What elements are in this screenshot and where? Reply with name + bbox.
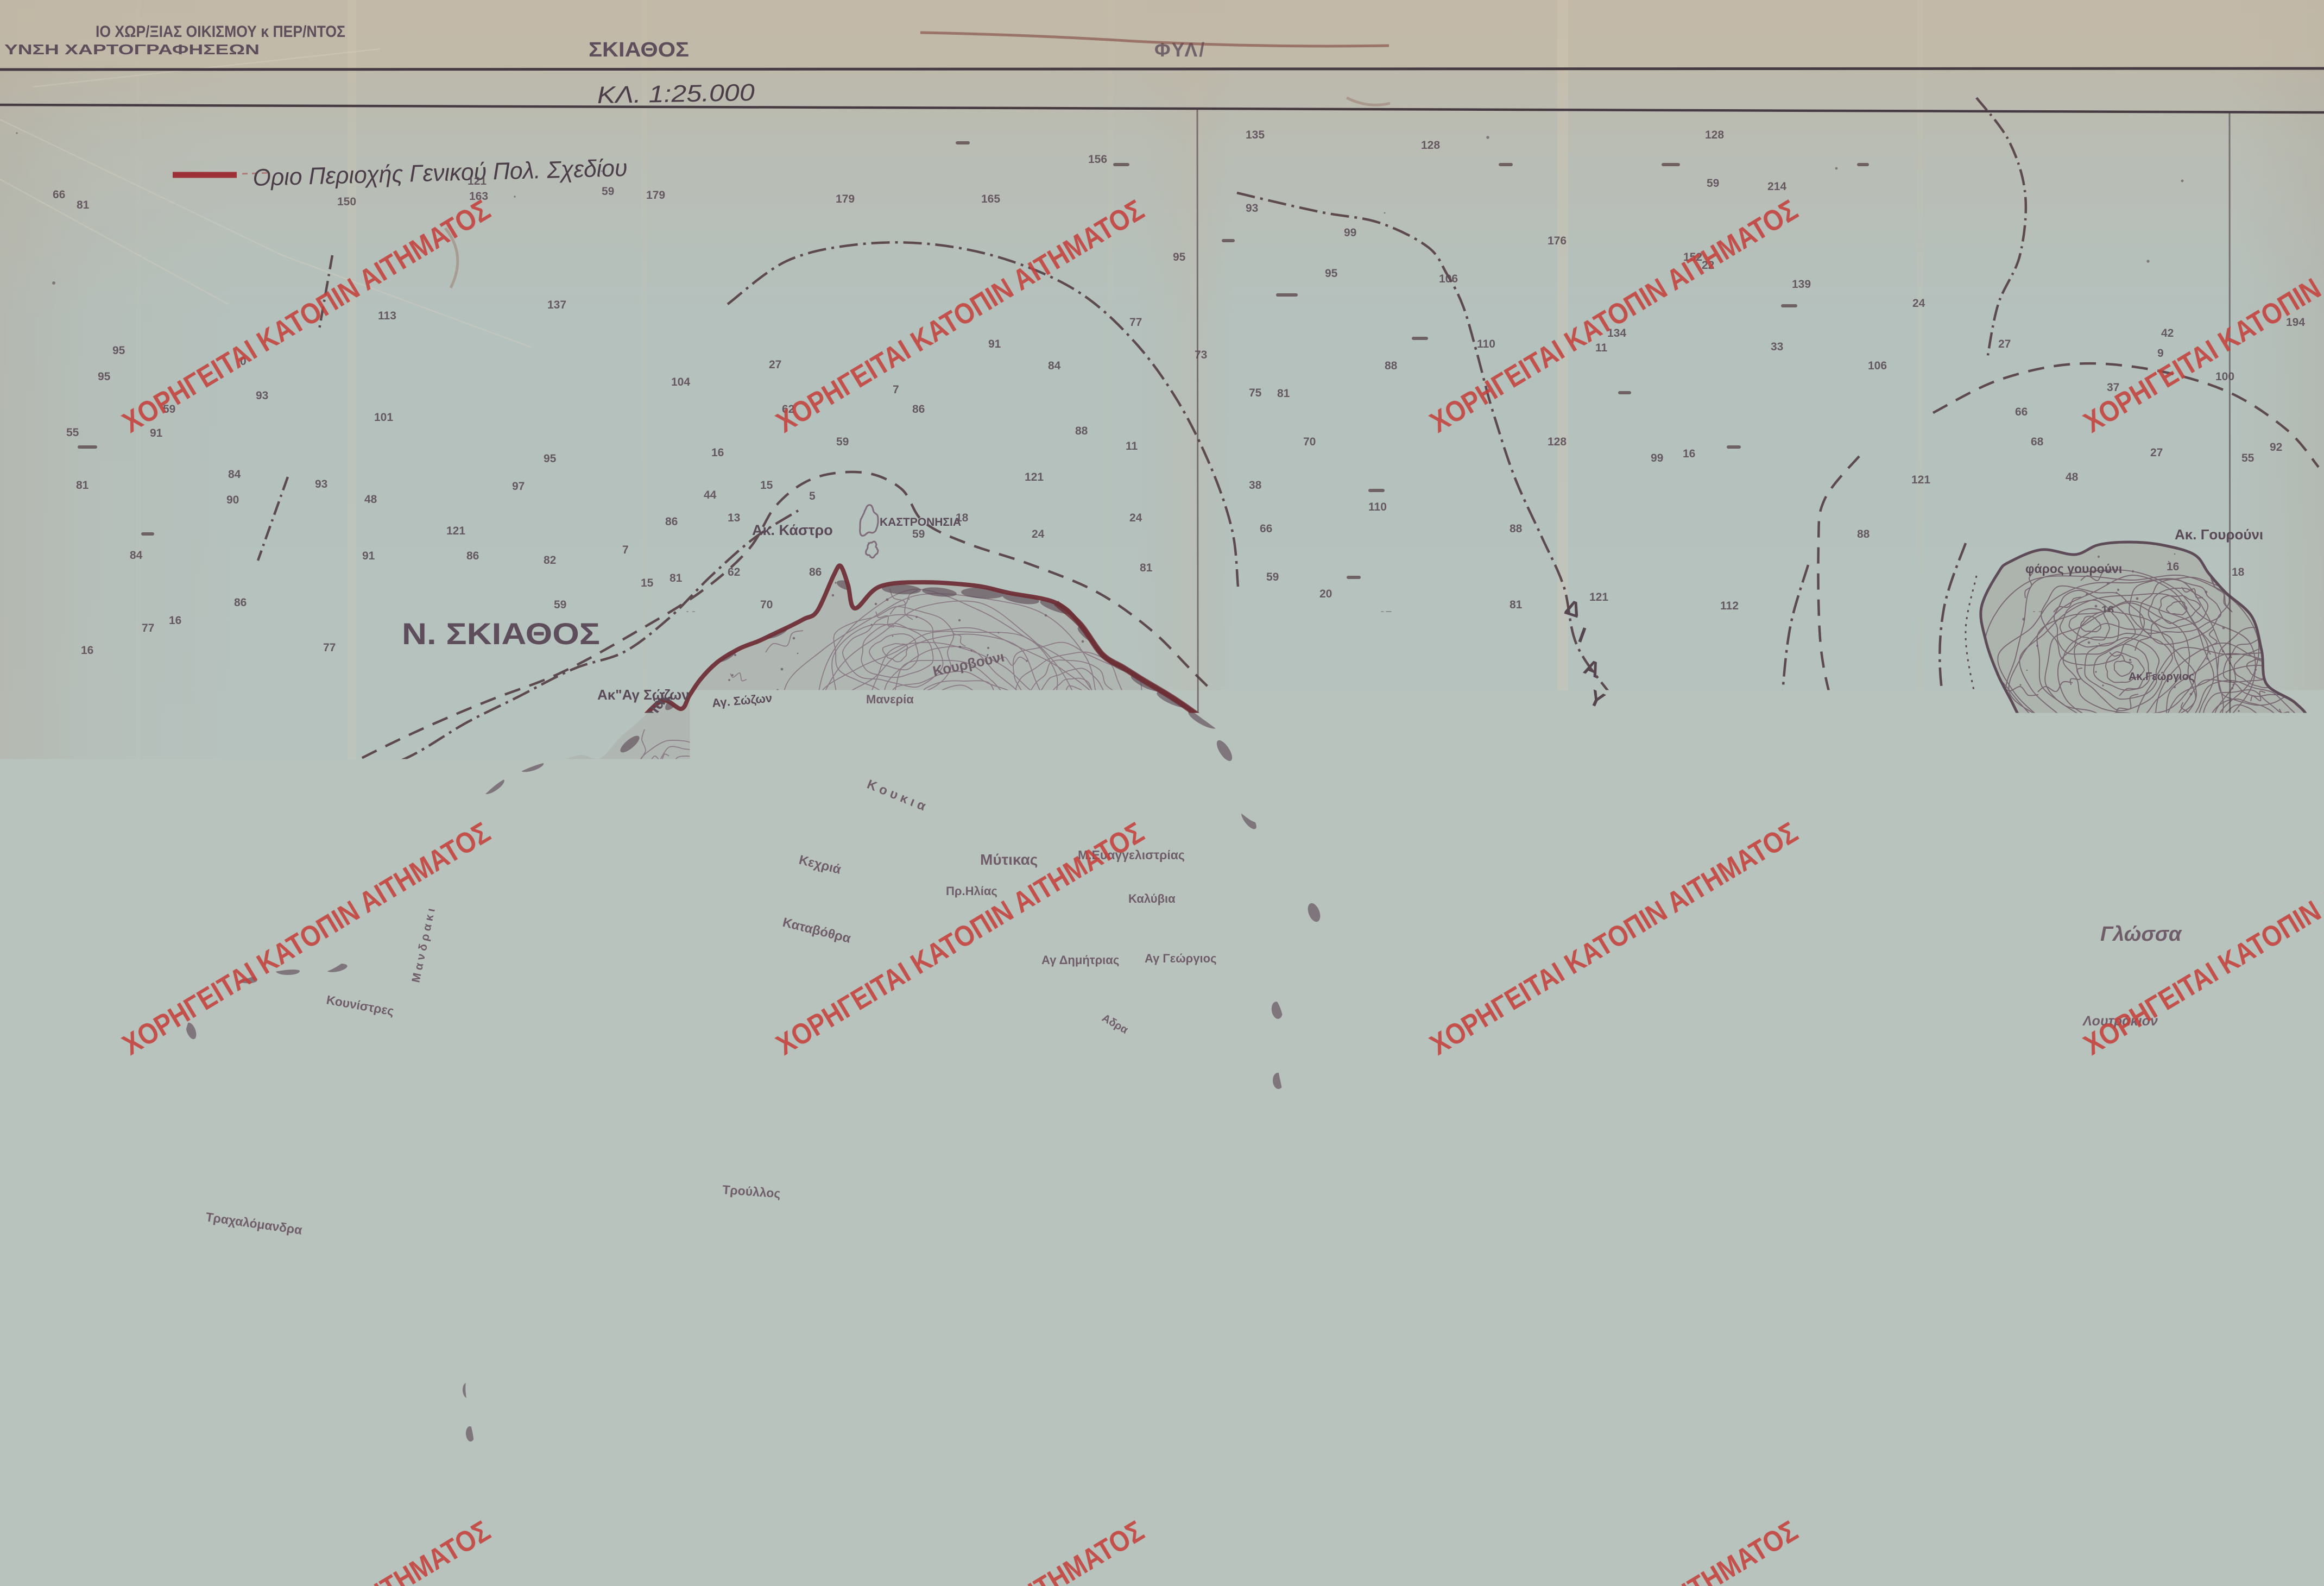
svg-text:60: 60 <box>1097 1413 1109 1426</box>
svg-text:86: 86 <box>809 566 822 578</box>
svg-text:102: 102 <box>1880 1039 1899 1051</box>
svg-text:10: 10 <box>1423 1087 1435 1100</box>
svg-text:16: 16 <box>711 446 724 459</box>
svg-text:59: 59 <box>912 528 925 540</box>
svg-text:53: 53 <box>87 783 99 796</box>
svg-text:16: 16 <box>2167 561 2179 573</box>
svg-text:5: 5 <box>1347 843 1353 855</box>
svg-text:150: 150 <box>1656 1250 1675 1263</box>
svg-text:8: 8 <box>1466 838 1473 850</box>
svg-text:101: 101 <box>1555 1039 1574 1051</box>
svg-text:70: 70 <box>2225 1316 2237 1328</box>
svg-text:37: 37 <box>1379 609 1392 622</box>
svg-text:110: 110 <box>1325 1457 1343 1469</box>
svg-text:13: 13 <box>478 1239 490 1252</box>
svg-text:Ακ. Κατεργάκι: Ακ. Κατεργάκι <box>1250 802 1348 818</box>
svg-text:Ακ. Μύτικας: Ακ. Μύτικας <box>930 1257 1009 1273</box>
svg-text:77: 77 <box>1129 316 1142 329</box>
svg-text:27: 27 <box>614 658 626 671</box>
svg-text:10: 10 <box>1336 751 1348 763</box>
svg-text:37: 37 <box>1314 1337 1327 1350</box>
svg-text:Ν. ΠΛΕΡ: Ν. ΠΛΕΡ <box>2262 1394 2303 1405</box>
svg-text:Ν. ΠΑΞΙΜΑΔΑ: Ν. ΠΑΞΙΜΑΔΑ <box>2040 1250 2091 1258</box>
svg-text:110: 110 <box>1368 501 1387 513</box>
svg-text:38: 38 <box>1379 696 1392 709</box>
svg-text:81: 81 <box>77 199 90 211</box>
svg-text:25: 25 <box>847 1402 860 1415</box>
svg-text:73: 73 <box>256 687 268 699</box>
svg-text:44: 44 <box>740 1217 753 1230</box>
svg-text:24: 24 <box>163 886 176 899</box>
svg-text:55: 55 <box>1249 1011 1262 1024</box>
svg-text:44: 44 <box>1485 856 1498 868</box>
svg-text:55: 55 <box>2297 615 2310 627</box>
svg-text:53: 53 <box>668 658 680 671</box>
svg-text:102: 102 <box>521 1457 540 1469</box>
svg-text:18: 18 <box>1347 1104 1360 1116</box>
svg-text:23: 23 <box>1021 1283 1033 1295</box>
svg-text:106: 106 <box>1618 1316 1637 1328</box>
svg-text:66: 66 <box>1260 523 1272 535</box>
svg-text:53: 53 <box>554 1381 566 1393</box>
svg-text:64: 64 <box>2158 1346 2171 1359</box>
svg-text:110: 110 <box>1857 788 1875 800</box>
svg-text:9: 9 <box>1319 631 1326 644</box>
svg-text:44: 44 <box>2253 1147 2266 1160</box>
svg-text:57: 57 <box>717 1381 729 1393</box>
svg-text:84: 84 <box>1510 1326 1523 1339</box>
svg-text:Υ Π Ο Υ Ρ Γ Ε Ι Ο: Υ Π Ο Υ Ρ Γ Ε Ι Ο <box>11 1514 367 1551</box>
svg-text:47308/85: 47308/85 <box>1954 1124 2022 1142</box>
svg-text:95: 95 <box>98 370 111 383</box>
svg-text:42: 42 <box>2161 327 2174 339</box>
svg-text:95: 95 <box>1173 251 1186 263</box>
svg-text:110: 110 <box>673 1446 692 1458</box>
svg-text:24: 24 <box>629 705 642 718</box>
svg-text:77: 77 <box>142 622 154 634</box>
svg-text:10: 10 <box>2236 1311 2249 1324</box>
svg-text:ΧΩΡ/ΞΙΑΣ ΟΙΚΙΣΜΟΥ & ΠΕΡΙΒΑΛΛΟΝ: ΧΩΡ/ΞΙΑΣ ΟΙΚΙΣΜΟΥ & ΠΕΡΙΒΑΛΛΟΝΤΟΣ <box>1827 1105 2077 1121</box>
svg-text:27: 27 <box>769 358 781 371</box>
svg-text:220: 220 <box>2073 1514 2092 1527</box>
svg-text:59: 59 <box>1707 177 1719 190</box>
svg-text:104: 104 <box>1205 1218 1224 1230</box>
svg-text:66: 66 <box>418 693 430 705</box>
svg-text:Ν. ΡΕΠΙΟΝ: Ν. ΡΕΠΙΟΝ <box>1463 1266 1515 1277</box>
svg-text:37: 37 <box>1622 800 1635 812</box>
svg-text:102: 102 <box>136 1435 155 1447</box>
svg-text:ΜΥΡΜΗΓΚΟΝΗΣΙΑ: ΜΥΡΜΗΓΚΟΝΗΣΙΑ <box>1317 1075 1408 1087</box>
svg-text:68: 68 <box>1933 631 1946 644</box>
svg-text:112: 112 <box>1720 600 1739 612</box>
svg-text:91: 91 <box>988 338 1001 350</box>
svg-text:22: 22 <box>193 1395 206 1407</box>
svg-text:60: 60 <box>1423 631 1435 644</box>
svg-text:121: 121 <box>1911 474 1930 486</box>
svg-text:190: 190 <box>2068 1407 2087 1420</box>
svg-text:115: 115 <box>1819 1538 1837 1551</box>
svg-text:Ν. ΤΣΟΥΓΚΡΙΑ: Ν. ΤΣΟΥΓΚΡΙΑ <box>1038 1440 1128 1455</box>
svg-text:16: 16 <box>2101 604 2114 616</box>
svg-text:22: 22 <box>2151 1269 2164 1282</box>
svg-text:143: 143 <box>1683 1305 1702 1317</box>
svg-text:81: 81 <box>1277 387 1290 400</box>
svg-text:81: 81 <box>1140 562 1153 574</box>
svg-text:10: 10 <box>1911 1163 1925 1177</box>
svg-text:13: 13 <box>728 512 740 524</box>
svg-text:110: 110 <box>1651 1022 1670 1035</box>
svg-text:101: 101 <box>1857 1257 1878 1272</box>
svg-text:102: 102 <box>228 1489 247 1502</box>
svg-text:(ΤΡΥΠΗΤΗ): (ΤΡΥΠΗΤΗ) <box>1466 1281 1513 1291</box>
svg-text:Ακ. Γουρούνι: Ακ. Γουρούνι <box>2175 526 2263 543</box>
svg-text:8: 8 <box>1336 838 1342 850</box>
svg-text:66: 66 <box>2116 1363 2129 1376</box>
svg-text:16: 16 <box>1220 1161 1233 1174</box>
svg-text:59: 59 <box>602 185 614 198</box>
svg-text:16: 16 <box>304 767 317 779</box>
svg-text:92: 92 <box>2270 441 2282 454</box>
svg-text:22: 22 <box>956 1554 968 1567</box>
svg-text:ΥΠΟΥΡΓΕΙΟ: ΥΠΟΥΡΓΕΙΟ <box>1874 1072 2014 1096</box>
svg-text:55: 55 <box>66 426 79 439</box>
svg-text:93: 93 <box>315 478 327 490</box>
svg-text:Αγ Γεώργιος: Αγ Γεώργιος <box>1145 952 1217 965</box>
svg-text:ΠΕΡΙ: ΠΕΡΙ <box>1820 1147 1844 1159</box>
svg-text:9: 9 <box>2157 347 2164 360</box>
svg-text:Πρ.Ηλίας: Πρ.Ηλίας <box>946 884 997 898</box>
svg-text:101: 101 <box>1564 1212 1583 1225</box>
svg-text:25: 25 <box>424 1359 437 1371</box>
svg-text:139: 139 <box>1792 278 1811 291</box>
svg-text:84: 84 <box>2009 903 2022 915</box>
svg-text:70: 70 <box>1303 436 1316 448</box>
svg-text:81: 81 <box>658 1260 671 1273</box>
svg-text:214: 214 <box>1767 180 1786 193</box>
svg-text:22: 22 <box>206 756 219 769</box>
svg-text:4: 4 <box>299 1359 305 1371</box>
svg-text:55: 55 <box>760 1446 773 1458</box>
svg-text:150: 150 <box>1195 1359 1214 1371</box>
svg-text:11: 11 <box>1126 440 1138 452</box>
svg-text:86: 86 <box>466 550 479 562</box>
svg-text:Ακ. Κεφαλος: Ακ. Κεφαλος <box>1239 725 1328 741</box>
svg-text:11: 11 <box>283 842 296 854</box>
svg-text:95: 95 <box>544 452 557 465</box>
svg-text:24: 24 <box>1360 669 1373 682</box>
svg-text:73: 73 <box>641 1370 653 1382</box>
svg-text:75: 75 <box>1987 973 2000 986</box>
svg-text:24: 24 <box>1379 783 1392 796</box>
svg-text:5: 5 <box>250 1402 256 1415</box>
svg-text:121: 121 <box>1025 471 1044 483</box>
svg-text:24: 24 <box>906 1455 919 1468</box>
svg-text:156: 156 <box>2009 1332 2028 1344</box>
svg-text:93: 93 <box>1246 202 1258 215</box>
svg-text:128: 128 <box>1421 139 1440 152</box>
svg-text:Ν.ΜΑΡΑΓΚΟΣ: Ν.ΜΑΡΑΓΚΟΣ <box>1216 1195 1291 1207</box>
svg-text:187: 187 <box>1227 1489 1246 1502</box>
svg-text:95: 95 <box>2070 1365 2083 1378</box>
svg-text:7: 7 <box>893 383 899 396</box>
svg-text:48: 48 <box>364 493 377 506</box>
svg-text:59: 59 <box>836 436 849 448</box>
svg-text:15: 15 <box>760 479 773 492</box>
svg-text:91: 91 <box>1971 1215 1985 1229</box>
svg-text:Γλώσσα: Γλώσσα <box>2100 923 2182 946</box>
svg-text:187: 187 <box>1607 1381 1626 1393</box>
svg-text:100: 100 <box>2215 370 2234 383</box>
svg-text:73: 73 <box>1379 1196 1392 1209</box>
svg-text:128: 128 <box>1810 1201 1832 1215</box>
svg-text:66: 66 <box>52 1383 64 1396</box>
svg-text:27: 27 <box>179 696 192 709</box>
svg-text:37: 37 <box>1085 1206 1097 1219</box>
svg-text:19: 19 <box>1303 696 1316 709</box>
svg-text:33: 33 <box>2221 1452 2233 1465</box>
svg-text:ΣΚΙΑΘΟΣ: ΣΚΙΑΘΟΣ <box>589 39 689 61</box>
svg-text:55: 55 <box>2241 452 2254 464</box>
svg-text:59: 59 <box>1266 571 1279 583</box>
svg-text:66: 66 <box>53 188 65 201</box>
svg-text:101: 101 <box>374 411 393 424</box>
svg-text:16: 16 <box>1625 1206 1637 1219</box>
svg-text:88: 88 <box>1075 425 1088 437</box>
svg-text:27: 27 <box>2150 446 2163 459</box>
svg-text:99: 99 <box>1344 226 1356 239</box>
svg-text:77: 77 <box>1925 1195 1940 1210</box>
svg-text:90: 90 <box>226 494 239 506</box>
svg-text:62: 62 <box>728 566 740 578</box>
svg-text:150: 150 <box>1752 1264 1771 1277</box>
svg-text:62: 62 <box>1960 707 1973 720</box>
svg-text:68: 68 <box>2009 767 2022 779</box>
svg-text:22: 22 <box>194 770 207 782</box>
svg-text:27: 27 <box>65 848 78 861</box>
svg-text:16: 16 <box>1683 448 1695 460</box>
svg-text:44: 44 <box>704 489 717 501</box>
svg-text:176: 176 <box>1548 235 1567 247</box>
svg-text:101: 101 <box>1839 1124 1860 1138</box>
svg-text:Ακ. Αμμόνι: Ακ. Αμμόνι <box>380 1335 453 1351</box>
svg-text:4 Ιουλίου 1985: 4 Ιουλίου 1985 <box>1927 1229 2037 1248</box>
svg-text:121: 121 <box>446 525 465 537</box>
svg-text:10: 10 <box>1303 1104 1316 1116</box>
svg-text:84: 84 <box>1048 360 1061 372</box>
svg-text:37: 37 <box>1347 1381 1359 1393</box>
svg-text:φάρος γουρούνι: φάρος γουρούνι <box>2025 562 2122 576</box>
svg-text:86: 86 <box>234 596 247 609</box>
svg-text:24: 24 <box>1129 512 1142 524</box>
svg-text:33: 33 <box>130 810 143 823</box>
svg-text:9: 9 <box>185 1120 191 1132</box>
svg-text:37: 37 <box>201 1337 213 1350</box>
svg-text:18: 18 <box>2232 566 2245 578</box>
svg-text:126: 126 <box>597 1478 616 1491</box>
svg-text:64: 64 <box>282 718 295 731</box>
svg-text:48: 48 <box>1527 863 1540 876</box>
svg-text:104: 104 <box>1439 626 1458 638</box>
svg-text:20: 20 <box>1390 881 1403 893</box>
svg-text:13: 13 <box>65 1000 78 1013</box>
svg-text:Ακ"Αγ Σώζων: Ακ"Αγ Σώζων <box>597 687 690 703</box>
svg-text:84: 84 <box>228 468 241 481</box>
svg-text:179: 179 <box>646 189 665 202</box>
svg-text:24: 24 <box>1032 528 1045 540</box>
svg-text:13: 13 <box>2031 609 2043 622</box>
svg-text:86: 86 <box>912 403 925 416</box>
svg-text:81: 81 <box>76 479 89 492</box>
svg-text:139: 139 <box>1727 1049 1746 1062</box>
svg-text:190: 190 <box>1948 1406 1967 1419</box>
svg-text:59: 59 <box>652 633 664 645</box>
svg-text:33: 33 <box>83 1452 96 1464</box>
svg-text:59: 59 <box>375 696 387 709</box>
svg-text:11: 11 <box>130 984 143 997</box>
svg-text:95: 95 <box>1412 1544 1425 1556</box>
svg-text:84: 84 <box>1167 1267 1180 1279</box>
svg-text:73: 73 <box>923 1381 936 1393</box>
svg-text:73: 73 <box>2042 968 2054 980</box>
svg-text:48: 48 <box>2066 471 2079 483</box>
svg-text:ΥΝΣΗ ΧΑΡΤΟΓΡΑΦΗΣΕΩΝ: ΥΝΣΗ ΧΑΡΤΟΓΡΑΦΗΣΕΩΝ <box>4 41 260 58</box>
svg-text:264: 264 <box>2018 1483 2037 1495</box>
svg-text:146: 146 <box>1818 1336 1837 1348</box>
svg-text:46: 46 <box>988 1435 1001 1447</box>
svg-text:31: 31 <box>76 1212 89 1225</box>
svg-text:16: 16 <box>81 644 93 657</box>
svg-text:13: 13 <box>684 609 697 622</box>
svg-text:95: 95 <box>1325 267 1338 280</box>
svg-text:22: 22 <box>2110 1293 2124 1307</box>
svg-text:22: 22 <box>1423 664 1435 676</box>
svg-text:55: 55 <box>54 1283 67 1295</box>
svg-text:100: 100 <box>1577 1136 1596 1149</box>
svg-text:24: 24 <box>228 832 241 845</box>
svg-text:49: 49 <box>1336 995 1348 1008</box>
svg-text:121: 121 <box>468 175 487 187</box>
svg-text:31: 31 <box>1314 794 1327 807</box>
svg-text:75: 75 <box>1510 881 1523 893</box>
svg-text:81: 81 <box>670 572 683 584</box>
svg-text:33: 33 <box>1771 341 1783 353</box>
svg-text:90: 90 <box>1547 654 1559 666</box>
svg-text:27: 27 <box>1998 338 2011 350</box>
svg-text:7: 7 <box>1843 942 1850 955</box>
svg-text:5: 5 <box>304 859 311 872</box>
svg-text:22: 22 <box>782 1392 794 1404</box>
svg-text:139: 139 <box>1785 942 1804 954</box>
svg-text:73: 73 <box>2209 1268 2222 1281</box>
svg-text:18: 18 <box>956 512 969 524</box>
svg-text:9: 9 <box>1449 933 1455 946</box>
svg-text:91: 91 <box>362 550 375 562</box>
svg-text:Ν. ΣΚΙΑΘΟΣ: Ν. ΣΚΙΑΘΟΣ <box>1310 848 1463 874</box>
svg-text:53: 53 <box>749 1305 762 1317</box>
svg-text:6: 6 <box>1325 1147 1331 1160</box>
svg-text:13: 13 <box>2297 1207 2309 1219</box>
svg-text:77: 77 <box>323 641 336 654</box>
svg-text:ΔΙΕΥΘΥΝΤΡΙΑ: ΔΙΕΥΘΥΝΤΡΙΑ <box>1900 1270 1993 1285</box>
svg-text:37: 37 <box>1412 718 1424 731</box>
svg-text:55: 55 <box>836 1305 849 1317</box>
svg-text:73: 73 <box>1195 349 1207 361</box>
svg-text:66: 66 <box>1265 1457 1278 1469</box>
svg-text:104: 104 <box>671 376 690 388</box>
svg-text:102: 102 <box>597 1424 616 1437</box>
svg-text:Ακ. Κάστρο: Ακ. Κάστρο <box>752 522 833 538</box>
svg-text:77: 77 <box>2101 1144 2115 1159</box>
svg-text:106: 106 <box>1575 1261 1594 1274</box>
svg-text:ΙΟ ΧΩΡ/ΞΙΑΣ ΟΙΚΙΣΜΟΥ κ ΠΕΡ/ΝΤΟ: ΙΟ ΧΩΡ/ΞΙΑΣ ΟΙΚΙΣΜΟΥ κ ΠΕΡ/ΝΤΟΣ <box>96 23 345 41</box>
svg-text:27: 27 <box>1379 838 1392 850</box>
svg-text:179: 179 <box>836 193 855 205</box>
svg-text:5: 5 <box>2297 1256 2303 1268</box>
svg-text:128: 128 <box>1548 436 1567 448</box>
svg-text:ΚΛ. 1:25.000: ΚΛ. 1:25.000 <box>597 79 755 109</box>
svg-text:128: 128 <box>1705 129 1724 141</box>
svg-text:121: 121 <box>1589 591 1608 603</box>
svg-text:86: 86 <box>1628 858 1641 871</box>
svg-text:Βας Γρυλλη: Βας Γρυλλη <box>1900 1322 2009 1350</box>
svg-text:106: 106 <box>1868 360 1887 372</box>
svg-text:73: 73 <box>1931 1025 1943 1037</box>
svg-text:16: 16 <box>169 614 181 627</box>
svg-text:13: 13 <box>228 914 241 926</box>
svg-text:16: 16 <box>700 634 713 646</box>
svg-text:Καλύβια: Καλύβια <box>1128 892 1176 905</box>
svg-text:50: 50 <box>1423 1381 1435 1393</box>
svg-text:Ακ Αγ Ελένης: Ακ Αγ Ελένης <box>128 1074 218 1091</box>
svg-text:20: 20 <box>348 1229 360 1241</box>
svg-text:22: 22 <box>98 941 110 953</box>
svg-text:84: 84 <box>130 549 143 562</box>
svg-text:73: 73 <box>1476 897 1488 910</box>
svg-text:104: 104 <box>1709 797 1728 809</box>
svg-text:Ακ. Αλμυρόπετρα: Ακ. Αλμυρόπετρα <box>2209 1284 2309 1298</box>
svg-text:ΑΣΠΡΟΝΗΣΟΣ: ΑΣΠΡΟΝΗΣΟΣ <box>1368 960 1447 973</box>
svg-text:66: 66 <box>1330 664 1343 676</box>
svg-text:15: 15 <box>413 1261 426 1274</box>
svg-text:Αγ Δημήτριας: Αγ Δημήτριας <box>1041 953 1119 967</box>
svg-text:135: 135 <box>1246 129 1265 141</box>
svg-text:ΔΑΣΚΑΛΟΝΗΣΙΟΝ: ΔΑΣΚΑΛΟΝΗΣΙΟΝ <box>1097 1119 1192 1131</box>
svg-text:60: 60 <box>1108 1272 1120 1285</box>
svg-text:88: 88 <box>1385 360 1398 372</box>
svg-text:Ακ. Κορφούλα: Ακ. Κορφούλα <box>146 1337 246 1354</box>
svg-text:11: 11 <box>1521 1392 1533 1405</box>
svg-text:113: 113 <box>378 310 396 322</box>
svg-text:150: 150 <box>337 196 356 208</box>
svg-text:31: 31 <box>1933 1255 1947 1269</box>
svg-text:35: 35 <box>2130 1316 2143 1328</box>
svg-text:8: 8 <box>1249 1077 1255 1089</box>
svg-text:20: 20 <box>1319 588 1332 600</box>
svg-text:66: 66 <box>2015 406 2028 418</box>
svg-text:Ακ.Γεώργιος: Ακ.Γεώργιος <box>2129 671 2194 683</box>
svg-text:70: 70 <box>1466 761 1479 774</box>
svg-text:68: 68 <box>2031 436 2044 448</box>
svg-text:ΒΡΑΧΟΝΗΣΙΔΕΣ ΜΑΡΙΝΕΣ: ΒΡΑΧΟΝΗΣΙΔΕΣ ΜΑΡΙΝΕΣ <box>390 1435 513 1446</box>
svg-text:Ακ. Κανάπιτσα: Ακ. Κανάπιτσα <box>873 1348 965 1362</box>
svg-text:64: 64 <box>358 805 371 817</box>
svg-text:22: 22 <box>1861 727 1873 740</box>
svg-text:ΚΑΣΤΡΟΝΗΣΙΑ: ΚΑΣΤΡΟΝΗΣΙΑ <box>880 516 961 528</box>
svg-text:24: 24 <box>912 1413 925 1426</box>
svg-text:ΧΩΡΟΤΑΞΙΑΣ ΟΙΚΙΣΜΟΥ & ΠΕΡΙΒΑΛΛ: ΧΩΡΟΤΑΞΙΑΣ ΟΙΚΙΣΜΟΥ & ΠΕΡΙΒΑΛΛΟΝΤΟΣ <box>12 1549 368 1570</box>
svg-text:82: 82 <box>544 554 556 567</box>
svg-text:95: 95 <box>112 344 125 357</box>
